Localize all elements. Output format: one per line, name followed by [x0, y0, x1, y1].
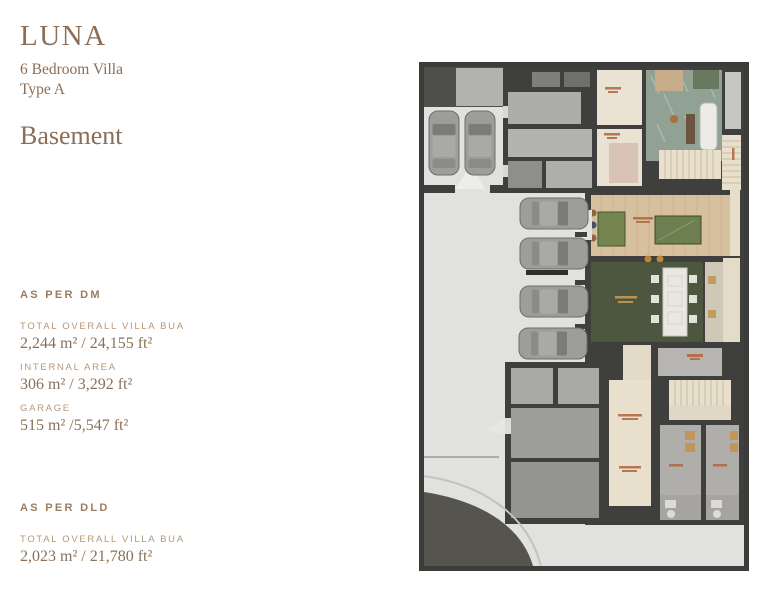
parked-car — [465, 111, 495, 175]
parked-car — [519, 328, 587, 359]
stair-flight — [669, 380, 731, 406]
floor-title: Basement — [20, 121, 123, 151]
area-value: 306 m² / 3,292 ft² — [20, 376, 400, 394]
cabinet — [686, 114, 695, 144]
utility-room — [508, 92, 581, 124]
entry-ramp — [456, 68, 507, 106]
area-label: TOTAL OVERALL VILLA BUA — [20, 534, 400, 545]
sauna-bench — [655, 70, 683, 91]
area-label: TOTAL OVERALL VILLA BUA — [20, 321, 400, 332]
stair-landing — [730, 187, 740, 256]
project-title: LUNA — [20, 20, 123, 53]
area-item-garage: GARAGE 515 m² /5,547 ft² — [20, 403, 400, 435]
villa-type-line1: 6 Bedroom Villa — [20, 60, 123, 80]
door-opening — [503, 106, 508, 118]
utility-room — [508, 129, 596, 157]
staff-bathroom — [706, 495, 739, 520]
stair-landing — [669, 406, 731, 420]
island-counter — [663, 268, 687, 336]
floor-plan-svg — [419, 62, 749, 571]
area-item-total-bua-dld: TOTAL OVERALL VILLA BUA 2,023 m² / 21,78… — [20, 534, 400, 566]
massage-rug — [609, 143, 638, 183]
page: LUNA 6 Bedroom Villa Type A Basement AS … — [0, 0, 771, 600]
door-opening — [505, 418, 511, 434]
area-label: INTERNAL AREA — [20, 362, 400, 373]
service-zone — [424, 67, 507, 107]
as-per-dld-heading: AS PER DLD — [20, 502, 400, 514]
area-label: GARAGE — [20, 403, 400, 414]
storage-closet — [532, 72, 560, 87]
wall — [553, 368, 558, 404]
stair-flight — [722, 135, 741, 190]
wall-stub — [575, 280, 587, 285]
utility-room — [508, 161, 542, 188]
plan-header: LUNA 6 Bedroom Villa Type A Basement — [20, 20, 123, 151]
corridor-upper — [623, 345, 651, 380]
area-value: 2,023 m² / 21,780 ft² — [20, 548, 400, 566]
side-room — [725, 72, 741, 129]
staff-rooms — [660, 425, 739, 520]
as-per-dm-section: AS PER DM TOTAL OVERALL VILLA BUA 2,244 … — [20, 289, 400, 444]
as-per-dm-heading: AS PER DM — [20, 289, 400, 301]
chair — [708, 310, 716, 318]
side-strip — [705, 262, 723, 342]
games-room — [567, 187, 740, 263]
parked-car — [520, 238, 588, 269]
utility-rooms — [503, 67, 601, 193]
parked-car — [429, 111, 459, 175]
utility-room — [546, 161, 596, 188]
ottoman — [657, 256, 664, 263]
villa-subtitle: 6 Bedroom Villa Type A — [20, 60, 123, 101]
storage-room — [511, 408, 599, 458]
wheel-stop — [526, 270, 568, 275]
steam-room — [693, 70, 719, 89]
villa-type-line2: Type A — [20, 80, 123, 100]
chair — [708, 276, 716, 284]
foosball-table — [598, 212, 625, 246]
stair-flight — [659, 150, 721, 179]
parked-car — [520, 198, 588, 229]
wall — [424, 185, 455, 193]
area-item-total-bua: TOTAL OVERALL VILLA BUA 2,244 m² / 24,15… — [20, 321, 400, 353]
wall — [490, 185, 503, 193]
changing-room — [597, 70, 642, 125]
wall-stub — [575, 232, 587, 237]
stair-landing — [723, 258, 740, 342]
store-room — [658, 348, 722, 376]
as-per-dld-section: AS PER DLD TOTAL OVERALL VILLA BUA 2,023… — [20, 502, 400, 575]
area-item-internal: INTERNAL AREA 306 m² / 3,292 ft² — [20, 362, 400, 394]
stool — [670, 115, 678, 123]
area-value: 515 m² /5,547 ft² — [20, 417, 400, 435]
storage-room — [511, 462, 599, 518]
basement-floor-plan-image — [419, 62, 749, 571]
parked-car — [520, 286, 588, 317]
corridor-floor — [609, 380, 651, 506]
bathtub — [700, 103, 717, 150]
majlis-room — [591, 258, 740, 342]
area-value: 2,244 m² / 24,155 ft² — [20, 335, 400, 353]
storage-closet — [564, 72, 590, 87]
door-opening — [503, 165, 508, 177]
ottoman — [645, 256, 652, 263]
